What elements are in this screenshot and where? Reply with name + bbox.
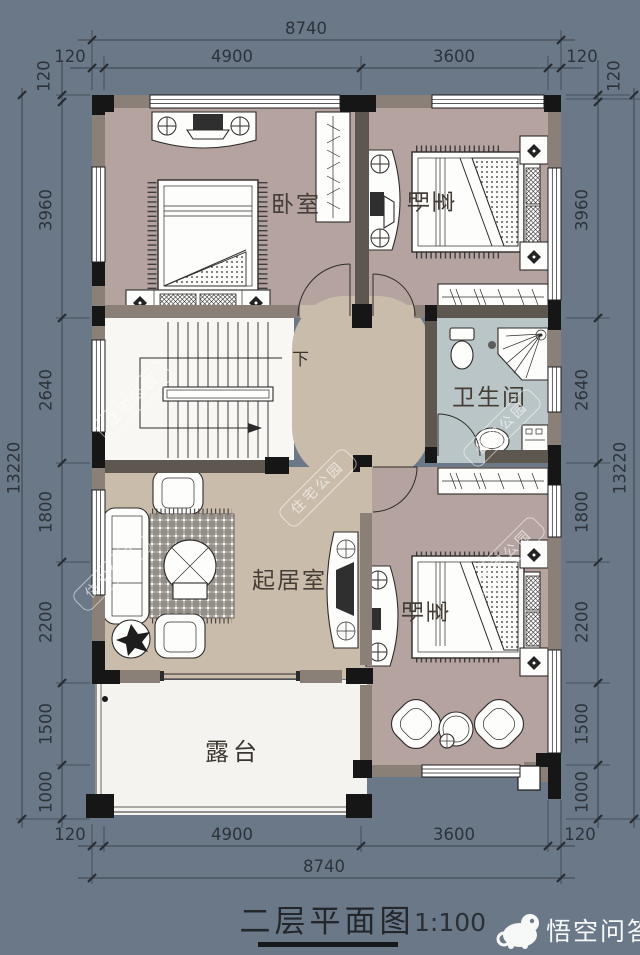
dim-right-seg1: 2640 (573, 369, 592, 411)
dim-right-seg4: 1500 (573, 703, 592, 745)
wardrobe-icon (316, 112, 350, 222)
window (92, 167, 105, 262)
armchair-icon (153, 470, 203, 514)
dim-right-total: 13220 (611, 442, 630, 495)
terrace-label: 露台 (205, 738, 261, 766)
terrace-dot (102, 696, 108, 702)
bedroom-top-left-label: 卧室 (271, 192, 321, 218)
dim-left-seg5: 1000 (37, 771, 56, 813)
dim-right-seg0: 3960 (573, 189, 592, 231)
dim-right-offset: 120 (605, 60, 624, 92)
plant-icon (112, 620, 150, 658)
dim-right-seg5: 1000 (573, 771, 592, 813)
window (150, 95, 340, 108)
dim-left-seg0: 3960 (37, 189, 56, 231)
dim-right-seg2: 1800 (573, 491, 592, 533)
floor-plan-page: 下 卧室 (0, 0, 640, 955)
stairs-down-label: 下 (292, 350, 309, 370)
dim-bottom-seg1: 4900 (211, 825, 253, 844)
armchair-icon (155, 614, 205, 658)
dim-bottom-total: 8740 (303, 857, 345, 876)
dim-left-seg4: 1500 (37, 703, 56, 745)
bedroom-top-right-label: 卧室 (404, 190, 455, 215)
tv-icon (336, 562, 354, 616)
dim-top-seg0: 120 (54, 47, 86, 66)
title-underline (258, 942, 398, 947)
floor-plan-drawing: 下 卧室 (0, 0, 640, 955)
window (432, 95, 544, 108)
wardrobe-icon (438, 468, 548, 494)
dim-left-seg2: 1800 (37, 491, 56, 533)
title-scale: 1:100 (414, 908, 486, 937)
window (422, 765, 520, 777)
title-text: 二层平面图 (240, 904, 415, 940)
window (548, 485, 561, 537)
bedroom-divider-wall (355, 110, 369, 306)
brand-text: 悟空问答 (546, 917, 640, 946)
dim-top-seg1: 4900 (211, 47, 253, 66)
floor-drain-icon (488, 341, 496, 349)
window (548, 650, 561, 753)
corner-pillar (518, 766, 540, 790)
dim-top-seg2: 3600 (433, 47, 475, 66)
dim-right-seg3: 2200 (573, 601, 592, 643)
bedroom-bottom-right-label: 卧室 (398, 600, 449, 625)
living-room-label: 起居室 (252, 568, 327, 594)
stair-rail (163, 387, 273, 401)
dim-bottom-seg0: 120 (54, 825, 86, 844)
toilet-icon (450, 328, 474, 340)
stair-hall-floor (98, 312, 294, 460)
window (548, 168, 561, 300)
window (548, 367, 561, 412)
dim-left-offset: 120 (35, 60, 54, 92)
tv-icon (193, 114, 223, 130)
dim-bottom-seg2: 3600 (433, 825, 475, 844)
tv-cabinet-icon (327, 532, 358, 648)
dim-bottom-seg3: 120 (564, 825, 596, 844)
dim-left-seg3: 2200 (37, 601, 56, 643)
dim-left-total: 13220 (5, 442, 24, 495)
tv-icon (370, 192, 384, 216)
dim-left-seg1: 2640 (37, 369, 56, 411)
dim-top-seg3: 120 (566, 47, 598, 66)
dim-top-total: 8740 (285, 19, 327, 38)
